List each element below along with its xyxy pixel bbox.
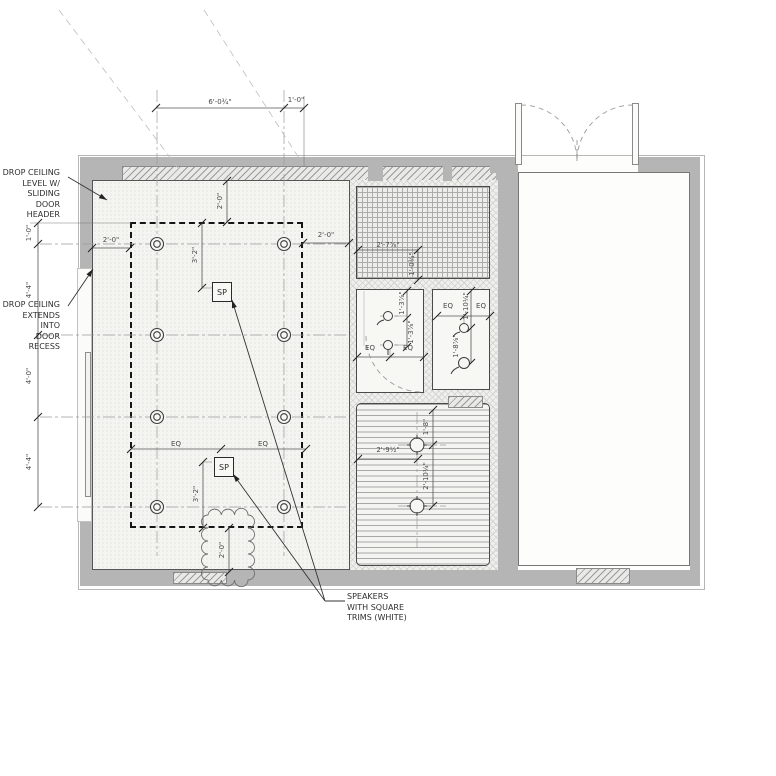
dim-label: 2'-0" [296,231,356,240]
dim-label: 1'-0" [266,96,326,105]
soffit-hatch-band [122,166,498,181]
dim-label: EQ [378,344,438,353]
dim-label: 2'-10¼" [421,456,431,496]
door-leaf-left [515,103,522,165]
dim-label: 4'-4" [24,442,34,482]
dim-label: 4'-4" [24,270,34,310]
door-leaf-right [632,103,639,165]
wall-right [690,157,700,586]
wall-block-a [368,166,383,181]
room-right [518,172,690,566]
dim-label: 6'-0¾" [190,98,250,107]
dim-label: 1'-0¾" [407,244,417,284]
note-speakers: SPEAKERS WITH SQUARE TRIMS (WHITE) [347,592,442,624]
door-opening-bottom-left [173,572,227,584]
double-door-opening [518,157,638,173]
door-opening-bottom-right [576,568,630,584]
door-header-hatch [448,396,483,408]
dim-label: 1'-8⅞" [451,326,461,366]
dim-label: 2'-0" [215,181,225,221]
speaker-tag-lower: SP [214,457,234,477]
dim-label: 1'-10¼" [461,286,471,326]
projection-lines [59,10,304,168]
dim-label: 2'-0" [217,530,227,570]
wall-mid-divider [496,172,518,570]
room-grid-ceiling [356,186,490,279]
speaker-tag-label: SP [217,288,227,297]
dim-label: 3'-2" [190,235,200,275]
dim-label: 4'-0" [24,356,34,396]
drop-ceiling-dashed-boundary [130,222,303,528]
speaker-tag-upper: SP [212,282,232,302]
dim-label: 2'-0" [81,236,141,245]
dim-label: 2'-9½" [358,446,418,455]
sliding-door-panel [85,352,91,497]
dim-label: EQ [146,440,206,449]
dim-label: EQ [451,302,511,311]
wall-door-jamb [490,157,518,173]
dim-label: EQ [233,440,293,449]
wall-left-upper [80,157,92,270]
dim-label: 1'-8" [421,407,431,447]
wall-block-b [443,166,452,181]
speaker-tag-label: SP [219,463,229,472]
dim-label: 3'-2" [191,474,201,514]
reflected-ceiling-plan: SP SP DROP CEILING LEVEL W/ SLIDING DOOR… [0,0,776,776]
dim-label: 1'-0" [24,213,34,253]
